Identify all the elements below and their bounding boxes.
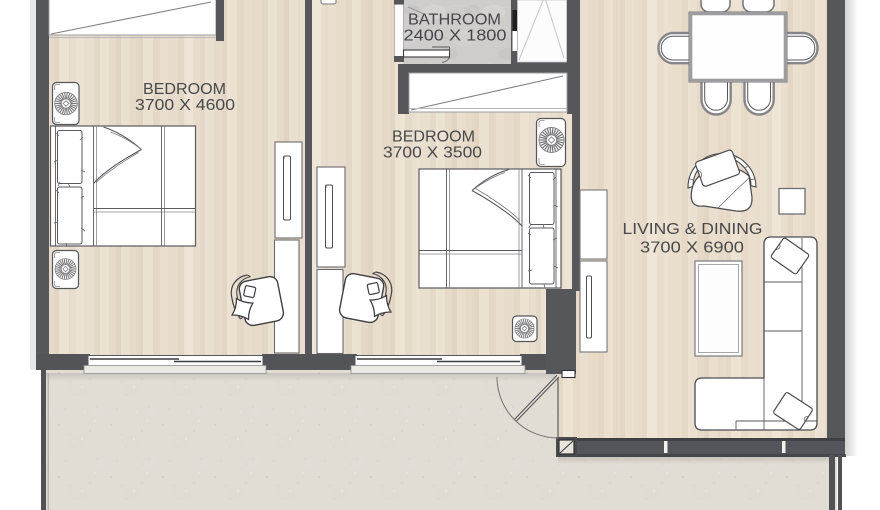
svg-text:BATHROOM: BATHROOM bbox=[408, 12, 501, 29]
svg-text:BEDROOM: BEDROOM bbox=[143, 81, 226, 98]
svg-text:LIVING & DINING: LIVING & DINING bbox=[623, 221, 763, 238]
svg-text:3700 X 4600: 3700 X 4600 bbox=[135, 97, 235, 114]
svg-text:3700 X 6900: 3700 X 6900 bbox=[640, 240, 744, 257]
svg-text:2400 X 1800: 2400 X 1800 bbox=[404, 28, 507, 45]
svg-text:BEDROOM: BEDROOM bbox=[392, 129, 475, 146]
svg-text:3700 X 3500: 3700 X 3500 bbox=[383, 145, 482, 162]
